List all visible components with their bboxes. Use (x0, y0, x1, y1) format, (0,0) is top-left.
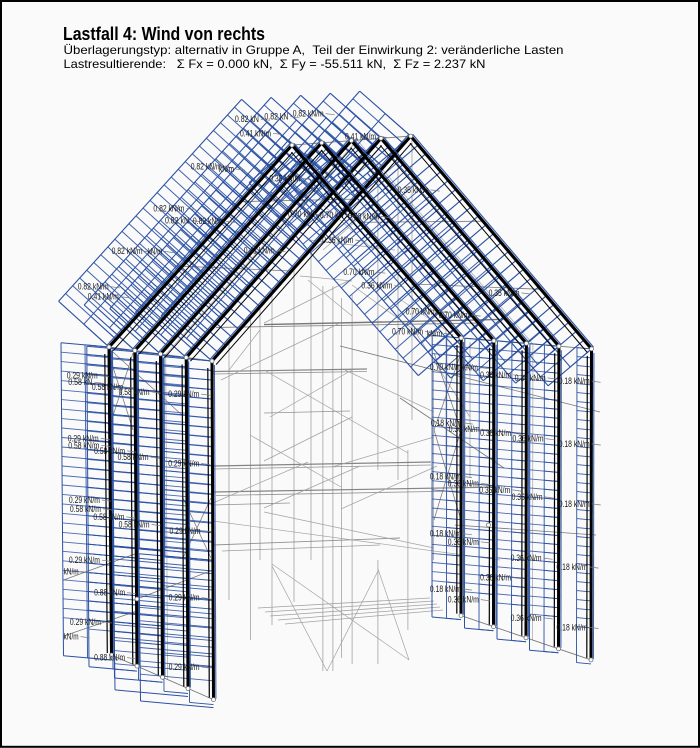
svg-text:0.18 kN/m: 0.18 kN/m (557, 622, 588, 632)
svg-text:0.41 kN/m: 0.41 kN/m (240, 128, 271, 138)
svg-text:0.41 kN/m: 0.41 kN/m (88, 292, 119, 302)
svg-text:0.70 kN: 0.70 kN (320, 210, 344, 220)
svg-text:kN/m: kN/m (148, 246, 163, 256)
svg-text:0.36 kN/m: 0.36 kN/m (515, 373, 546, 383)
svg-text:Lastfall 4: Wind von rechts: Lastfall 4: Wind von rechts (63, 24, 265, 44)
svg-text:0.36 kN/m: 0.36 kN/m (511, 553, 542, 563)
svg-text:0.36 kN/m: 0.36 kN/m (480, 428, 511, 438)
svg-text:0.70 kN/m: 0.70 kN/m (348, 211, 379, 221)
svg-text:0.36 kN/m: 0.36 kN/m (512, 492, 543, 502)
svg-text:0.82 kN: 0.82 kN (235, 114, 259, 124)
svg-text:0.88 kN/m: 0.88 kN/m (94, 653, 125, 663)
svg-text:0.36 kN/m: 0.36 kN/m (322, 235, 353, 245)
svg-text:0.70 kN/m: 0.70 kN/m (439, 310, 470, 320)
svg-text:0.36 kN/m: 0.36 kN/m (479, 485, 510, 495)
svg-text:0.36 kN/m: 0.36 kN/m (448, 537, 479, 547)
svg-text:0.29 kN/m: 0.29 kN/m (169, 593, 200, 603)
svg-text:0.36 kN/m: 0.36 kN/m (361, 281, 392, 291)
svg-text:0.58 kN/m: 0.58 kN/m (119, 387, 150, 397)
svg-text:0.29 kN/m: 0.29 kN/m (69, 555, 100, 565)
svg-text:0.29 kN/m: 0.29 kN/m (169, 662, 200, 672)
svg-text:0.82 kN: 0.82 kN (264, 112, 288, 122)
svg-text:kN/m: kN/m (219, 164, 234, 174)
svg-text:0.18 kN/m: 0.18 kN/m (557, 562, 588, 572)
svg-text:0.36 kN/m: 0.36 kN/m (480, 573, 511, 583)
svg-text:0.82 kN: 0.82 kN (165, 215, 189, 225)
svg-text:0.29 kN/m: 0.29 kN/m (168, 459, 199, 469)
svg-text:0.36 kN/m: 0.36 kN/m (449, 424, 480, 434)
svg-text:0.70 kN/m: 0.70 kN/m (430, 362, 461, 372)
svg-text:0.36 kN/m: 0.36 kN/m (448, 478, 479, 488)
svg-text:0.82 kN/m: 0.82 kN/m (112, 246, 143, 256)
svg-text:0.29 kN/m: 0.29 kN/m (70, 617, 101, 627)
svg-text:0.41 kN/m: 0.41 kN/m (345, 131, 376, 141)
svg-text:kN/m: kN/m (427, 328, 442, 338)
svg-text:0.70 kN/m: 0.70 kN/m (392, 327, 423, 337)
svg-text:0.70 kN/m: 0.70 kN/m (406, 306, 437, 316)
svg-text:0.82 kN/m: 0.82 kN/m (153, 203, 184, 213)
svg-text:0.18 kN/m: 0.18 kN/m (559, 499, 590, 509)
svg-text:kN/m: kN/m (64, 567, 79, 577)
svg-text:Lastresultierende: Σ Fx = 0.: Lastresultierende: Σ Fx = 0.000 kN, Σ Fy… (64, 57, 486, 71)
svg-text:0.18 kN/m: 0.18 kN/m (430, 584, 461, 594)
svg-text:0.36 kN/m: 0.36 kN/m (513, 434, 544, 444)
svg-text:0.82 kN/m: 0.82 kN/m (293, 109, 324, 119)
svg-text:0.29 kN/m: 0.29 kN/m (168, 389, 199, 399)
svg-text:0.70 kN/m: 0.70 kN/m (343, 267, 374, 277)
svg-text:0.36 kN/m: 0.36 kN/m (448, 595, 479, 605)
svg-text:0.58 kN: 0.58 kN (68, 377, 92, 387)
svg-text:0.36 kN/m: 0.36 kN/m (511, 613, 542, 623)
svg-text:0.35 kN/m: 0.35 kN/m (269, 173, 300, 183)
svg-text:0.82 kN/m: 0.82 kN/m (78, 282, 109, 292)
svg-text:0.58 kN/m: 0.58 kN/m (119, 520, 150, 530)
svg-text:0.36 kN/m: 0.36 kN/m (480, 370, 511, 380)
svg-text:0.29 kN/m: 0.29 kN/m (170, 526, 201, 536)
svg-text:kN/m: kN/m (463, 363, 478, 373)
svg-text:0.70 kN: 0.70 kN (288, 209, 312, 219)
svg-text:0.35 kN/m: 0.35 kN/m (489, 288, 520, 298)
svg-text:Überlagerungstyp: alternativ i: Überlagerungstyp: alternativ in Gruppe A… (64, 43, 564, 57)
svg-text:0.18 kN/m: 0.18 kN/m (559, 439, 590, 449)
svg-text:0.82 kN/m: 0.82 kN/m (193, 216, 224, 226)
svg-text:0.18 kN/m: 0.18 kN/m (559, 376, 590, 386)
svg-text:kN/m: kN/m (64, 632, 79, 642)
svg-text:0.82 kN/m: 0.82 kN/m (191, 162, 222, 172)
svg-text:0.58 kN/m: 0.58 kN/m (118, 452, 149, 462)
svg-text:0.35 kN/m: 0.35 kN/m (398, 185, 429, 195)
svg-text:0.88 kN/m: 0.88 kN/m (94, 588, 125, 598)
svg-text:0.41 kN/m: 0.41 kN/m (244, 246, 275, 256)
